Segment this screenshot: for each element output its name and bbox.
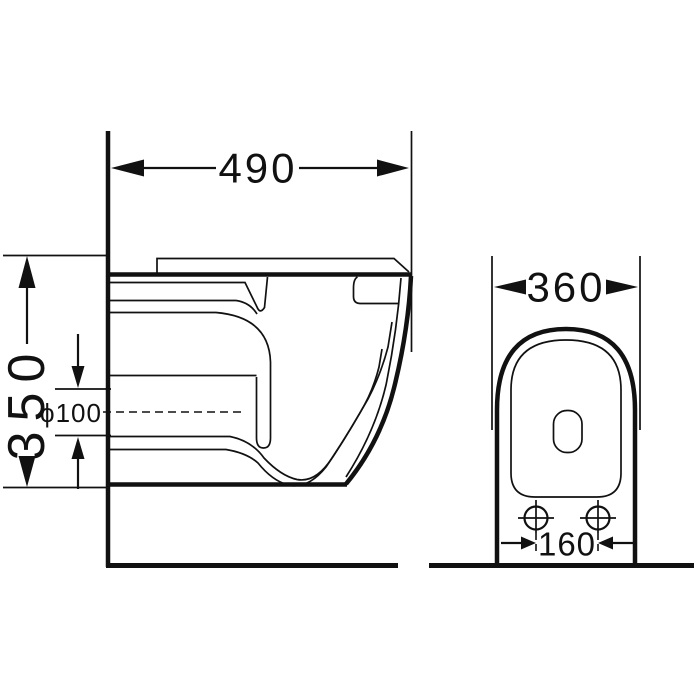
depth-dimension-label: 490 <box>218 145 297 192</box>
trap-back-curve <box>110 349 382 486</box>
drain-dimension-label: ϕ100 <box>40 398 102 428</box>
trap-front-curve <box>110 322 392 480</box>
drain-opening <box>554 411 583 453</box>
arrow-right-icon <box>521 537 536 550</box>
dimension-depth-490: 490 <box>111 145 409 192</box>
bowl-interior-section <box>110 277 401 486</box>
bowl-back-channel <box>110 313 271 449</box>
front-view: 360 160 <box>429 256 694 567</box>
front-inner-rim <box>511 340 621 497</box>
bowl-outer-profile <box>346 276 411 484</box>
arrow-left-icon <box>598 537 613 550</box>
arrow-left-icon <box>494 280 526 295</box>
flush-inlet-section <box>354 277 400 304</box>
dimension-bolt-spacing-160: 160 <box>501 526 633 563</box>
side-view: 490 350 <box>0 131 412 567</box>
dimension-height-350: 350 <box>0 256 110 488</box>
bolt-spacing-dimension-label: 160 <box>538 526 596 563</box>
technical-drawing-page: 490 350 <box>0 0 700 700</box>
dimension-width-360: 360 <box>494 264 638 311</box>
toilet-dimension-drawing: 490 350 <box>0 0 700 700</box>
arrow-up-icon <box>19 256 36 288</box>
width-dimension-label: 360 <box>526 264 605 311</box>
rim-channel-line <box>110 277 268 311</box>
seat-outline <box>157 259 409 274</box>
arrow-right-icon <box>377 160 409 177</box>
arrow-up-icon <box>72 437 85 459</box>
arrow-left-icon <box>111 160 144 177</box>
arrow-right-icon <box>606 280 638 295</box>
arrow-down-icon <box>72 366 85 388</box>
